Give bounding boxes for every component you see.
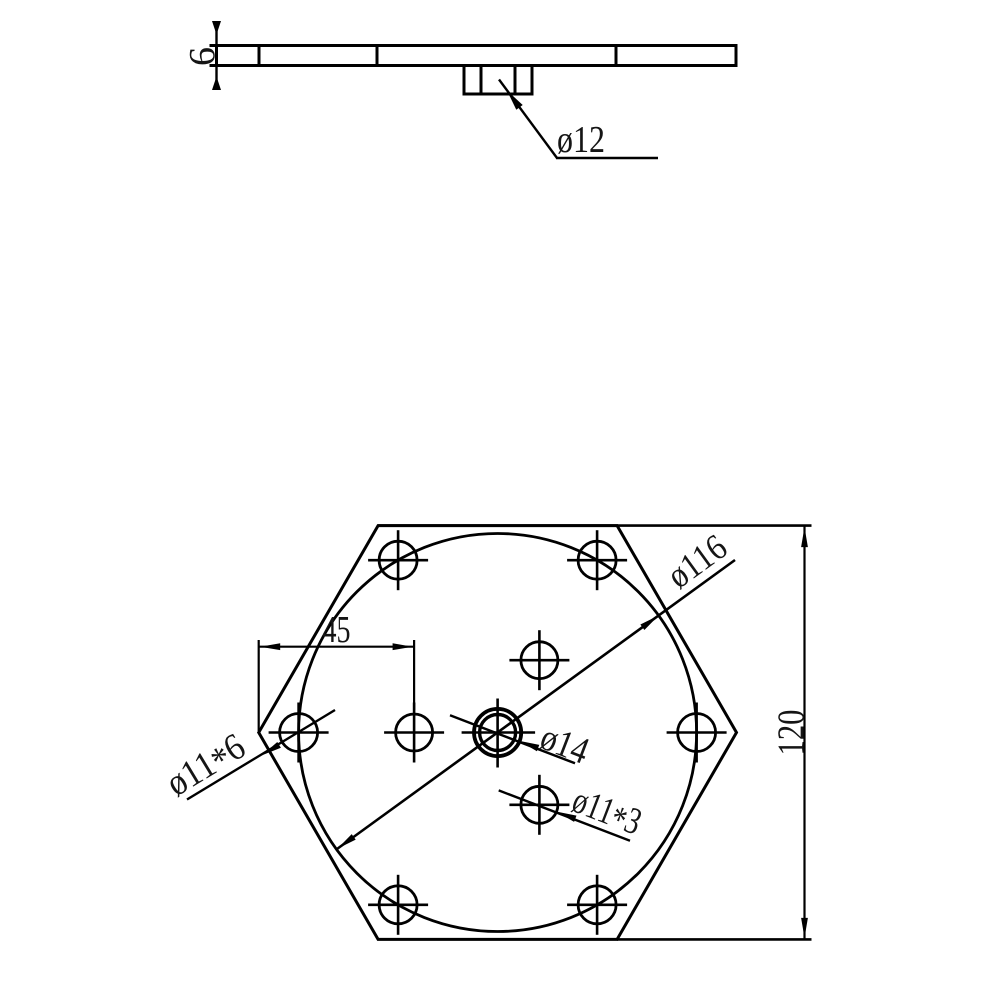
svg-text:ø12: ø12 — [557, 119, 605, 161]
svg-text:6: 6 — [183, 47, 224, 66]
svg-text:120: 120 — [771, 710, 813, 756]
svg-text:45: 45 — [323, 609, 351, 651]
